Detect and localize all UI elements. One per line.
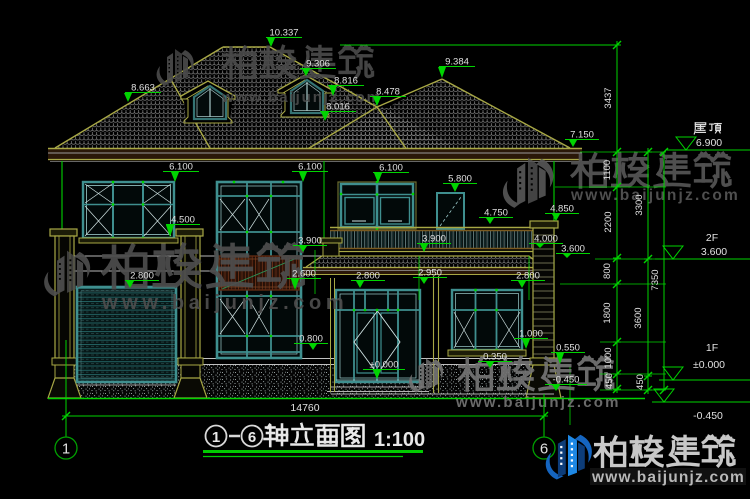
svg-text:1000: 1000 (603, 347, 614, 368)
svg-text:3600: 3600 (633, 307, 644, 328)
svg-text:8.016: 8.016 (326, 102, 350, 113)
svg-text:6.100: 6.100 (169, 162, 193, 173)
svg-text:6.100: 6.100 (298, 162, 322, 173)
svg-text:3300: 3300 (634, 194, 645, 215)
svg-text:www.baijunjz.com: www.baijunjz.com (570, 187, 740, 204)
svg-text:9.384: 9.384 (445, 57, 469, 68)
svg-text:2.800: 2.800 (516, 271, 540, 282)
svg-text:3.600: 3.600 (561, 244, 585, 255)
svg-text:1.000: 1.000 (519, 329, 543, 340)
svg-text:450: 450 (604, 373, 615, 389)
svg-text:6: 6 (248, 429, 256, 446)
svg-text:1:100: 1:100 (374, 429, 425, 451)
svg-text:3.900: 3.900 (422, 234, 446, 245)
svg-text:6.100: 6.100 (379, 163, 403, 174)
svg-text:2200: 2200 (603, 211, 614, 232)
svg-text:1F: 1F (706, 342, 718, 354)
svg-text:9.306: 9.306 (306, 59, 330, 70)
svg-text:5.800: 5.800 (448, 174, 472, 185)
svg-text:±0.000: ±0.000 (370, 360, 399, 371)
svg-text:8.816: 8.816 (334, 76, 358, 87)
svg-text:450: 450 (635, 374, 646, 390)
svg-text:2.800: 2.800 (356, 271, 380, 282)
svg-text:1100: 1100 (602, 160, 613, 180)
svg-text:14760: 14760 (290, 402, 319, 414)
svg-text:www.baijunjz.com: www.baijunjz.com (221, 89, 382, 106)
svg-text:-0.450: -0.450 (693, 410, 723, 422)
svg-text:4.000: 4.000 (534, 234, 558, 245)
svg-text:10.337: 10.337 (269, 28, 298, 39)
svg-text:3.900: 3.900 (298, 236, 322, 247)
svg-text:1800: 1800 (602, 302, 613, 323)
svg-text:-0.450: -0.450 (553, 375, 580, 386)
svg-text:1: 1 (212, 429, 220, 446)
svg-text:www.baijunjz.com: www.baijunjz.com (591, 469, 745, 486)
svg-text:www.baijunjz.com: www.baijunjz.com (101, 292, 348, 314)
svg-text:7.150: 7.150 (570, 130, 594, 141)
svg-text:2F: 2F (706, 232, 718, 244)
svg-text:4.850: 4.850 (550, 204, 574, 215)
svg-text:www.baijunjz.com: www.baijunjz.com (455, 394, 621, 411)
svg-text:2.800: 2.800 (130, 271, 154, 282)
svg-text:2.950: 2.950 (418, 268, 442, 279)
svg-text:4.750: 4.750 (484, 208, 508, 219)
svg-text:1: 1 (62, 441, 70, 458)
svg-text:6.900: 6.900 (696, 137, 722, 149)
svg-text:3437: 3437 (603, 87, 614, 108)
svg-text:0.350: 0.350 (483, 352, 507, 363)
svg-text:0.550: 0.550 (556, 343, 580, 354)
svg-text:7350: 7350 (650, 269, 661, 290)
svg-text:0.800: 0.800 (299, 334, 323, 345)
svg-text:3.600: 3.600 (701, 246, 727, 258)
svg-text:±0.000: ±0.000 (693, 359, 725, 371)
svg-text:8.663: 8.663 (131, 83, 155, 94)
svg-text:4.500: 4.500 (171, 215, 195, 226)
svg-text:800: 800 (602, 263, 613, 279)
svg-text:2.600: 2.600 (292, 269, 316, 280)
svg-text:8.478: 8.478 (376, 87, 400, 98)
svg-text:6: 6 (540, 441, 548, 458)
